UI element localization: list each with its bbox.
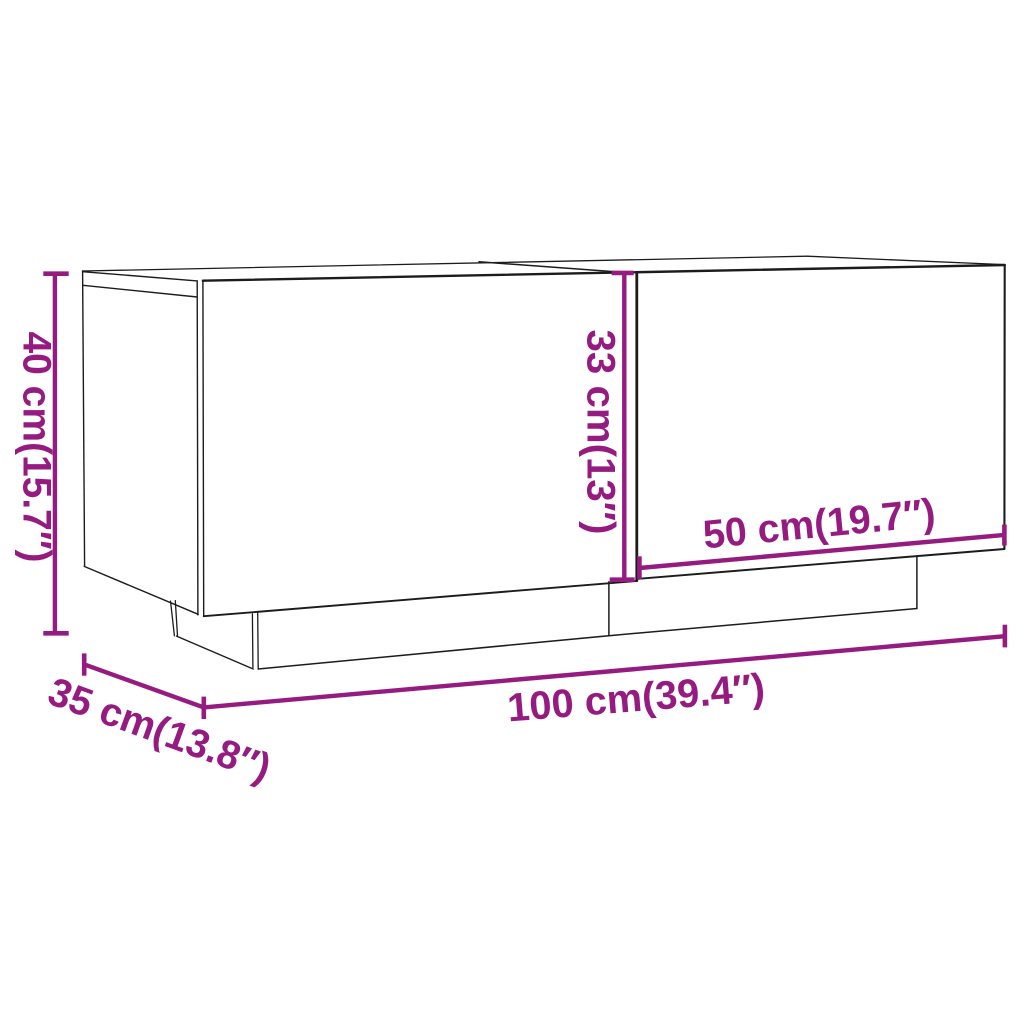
svg-text:33 cm(13″): 33 cm(13″): [579, 330, 623, 535]
svg-text:40 cm(15.7″): 40 cm(15.7″): [14, 332, 58, 563]
